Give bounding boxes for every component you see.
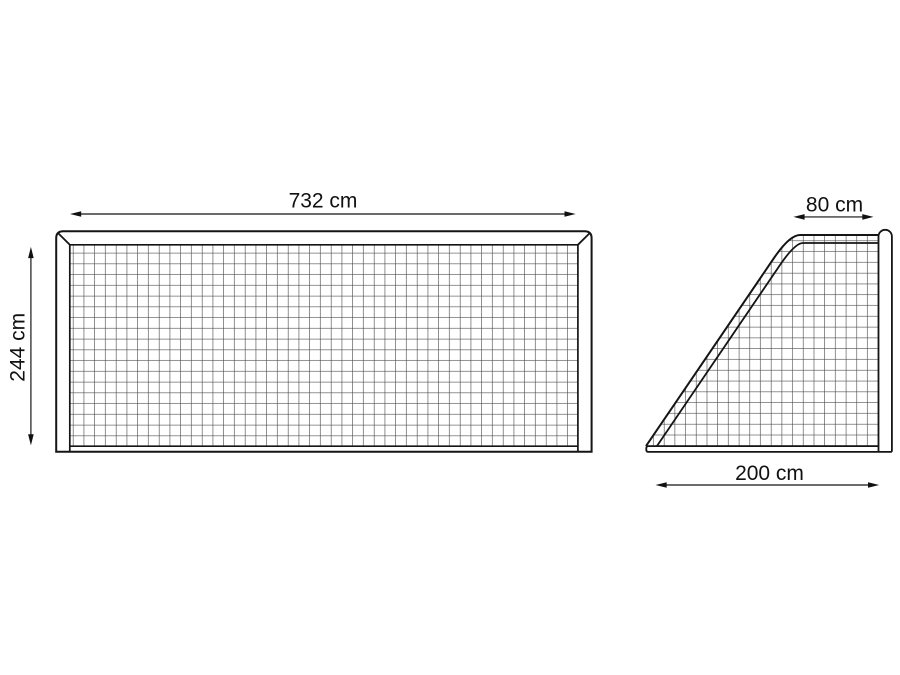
svg-text:732 cm: 732 cm [289, 190, 358, 213]
svg-text:200 cm: 200 cm [735, 462, 804, 485]
svg-text:244 cm: 244 cm [6, 313, 29, 382]
svg-text:80 cm: 80 cm [806, 194, 863, 217]
